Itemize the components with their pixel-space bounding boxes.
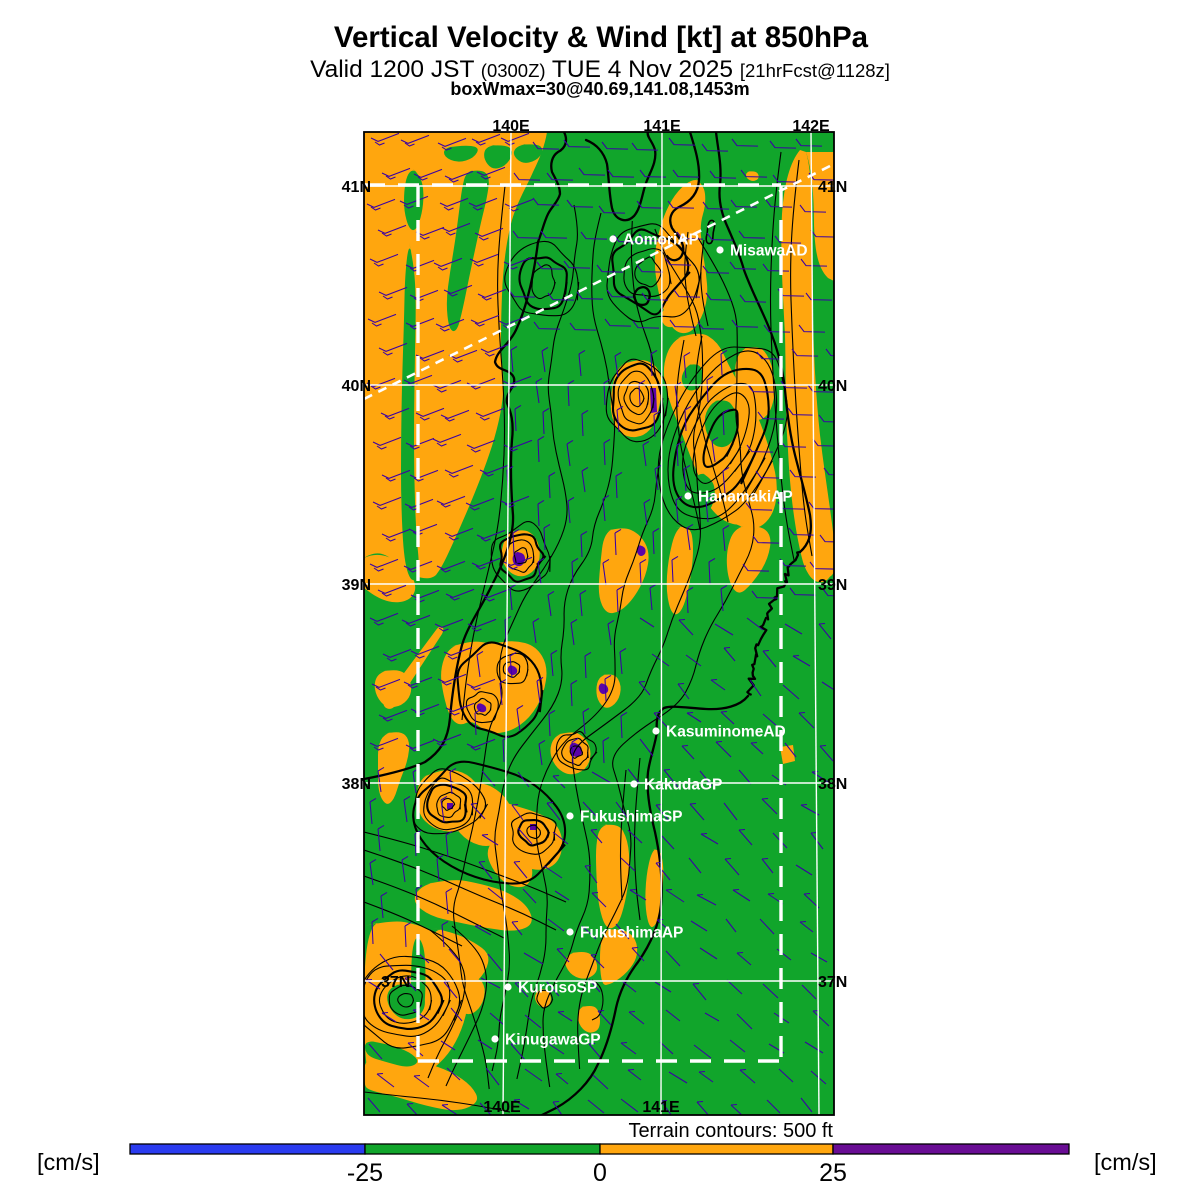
svg-text:38N: 38N xyxy=(342,776,371,793)
svg-text:37N: 37N xyxy=(381,974,410,991)
svg-text:40N: 40N xyxy=(342,378,371,395)
svg-text:25: 25 xyxy=(819,1159,847,1187)
svg-text:142E: 142E xyxy=(792,118,830,135)
svg-text:-25: -25 xyxy=(347,1159,383,1187)
svg-text:KasuminomeAD: KasuminomeAD xyxy=(666,724,786,741)
svg-text:MisawaAD: MisawaAD xyxy=(730,243,808,260)
svg-text:AomoriAP: AomoriAP xyxy=(623,232,699,249)
svg-text:141E: 141E xyxy=(643,118,681,135)
svg-text:FukushimaSP: FukushimaSP xyxy=(580,809,683,826)
svg-text:FukushimaAP: FukushimaAP xyxy=(580,925,683,942)
svg-text:0: 0 xyxy=(593,1159,607,1187)
svg-text:KuroisoSP: KuroisoSP xyxy=(518,980,597,997)
svg-text:[cm/s]: [cm/s] xyxy=(1094,1149,1157,1175)
svg-text:[cm/s]: [cm/s] xyxy=(37,1149,100,1175)
svg-text:41N: 41N xyxy=(342,179,371,196)
svg-text:141E: 141E xyxy=(642,1099,680,1116)
svg-text:140E: 140E xyxy=(492,118,530,135)
svg-text:39N: 39N xyxy=(818,577,847,594)
svg-text:40N: 40N xyxy=(818,378,847,395)
svg-text:KakudaGP: KakudaGP xyxy=(644,777,722,794)
svg-text:37N: 37N xyxy=(818,974,847,991)
svg-text:Vertical Velocity & Wind [kt]: Vertical Velocity & Wind [kt] at 850hPa xyxy=(334,21,869,54)
svg-text:Terrain contours: 500 ft: Terrain contours: 500 ft xyxy=(628,1120,833,1142)
svg-text:KinugawaGP: KinugawaGP xyxy=(505,1032,601,1049)
svg-text:HanamakiAP: HanamakiAP xyxy=(698,489,793,506)
svg-text:140E: 140E xyxy=(483,1099,521,1116)
svg-text:boxWmax=30@40.69,141.08,1453m: boxWmax=30@40.69,141.08,1453m xyxy=(450,79,749,99)
svg-text:39N: 39N xyxy=(342,577,371,594)
svg-text:41N: 41N xyxy=(818,179,847,196)
svg-text:38N: 38N xyxy=(818,776,847,793)
